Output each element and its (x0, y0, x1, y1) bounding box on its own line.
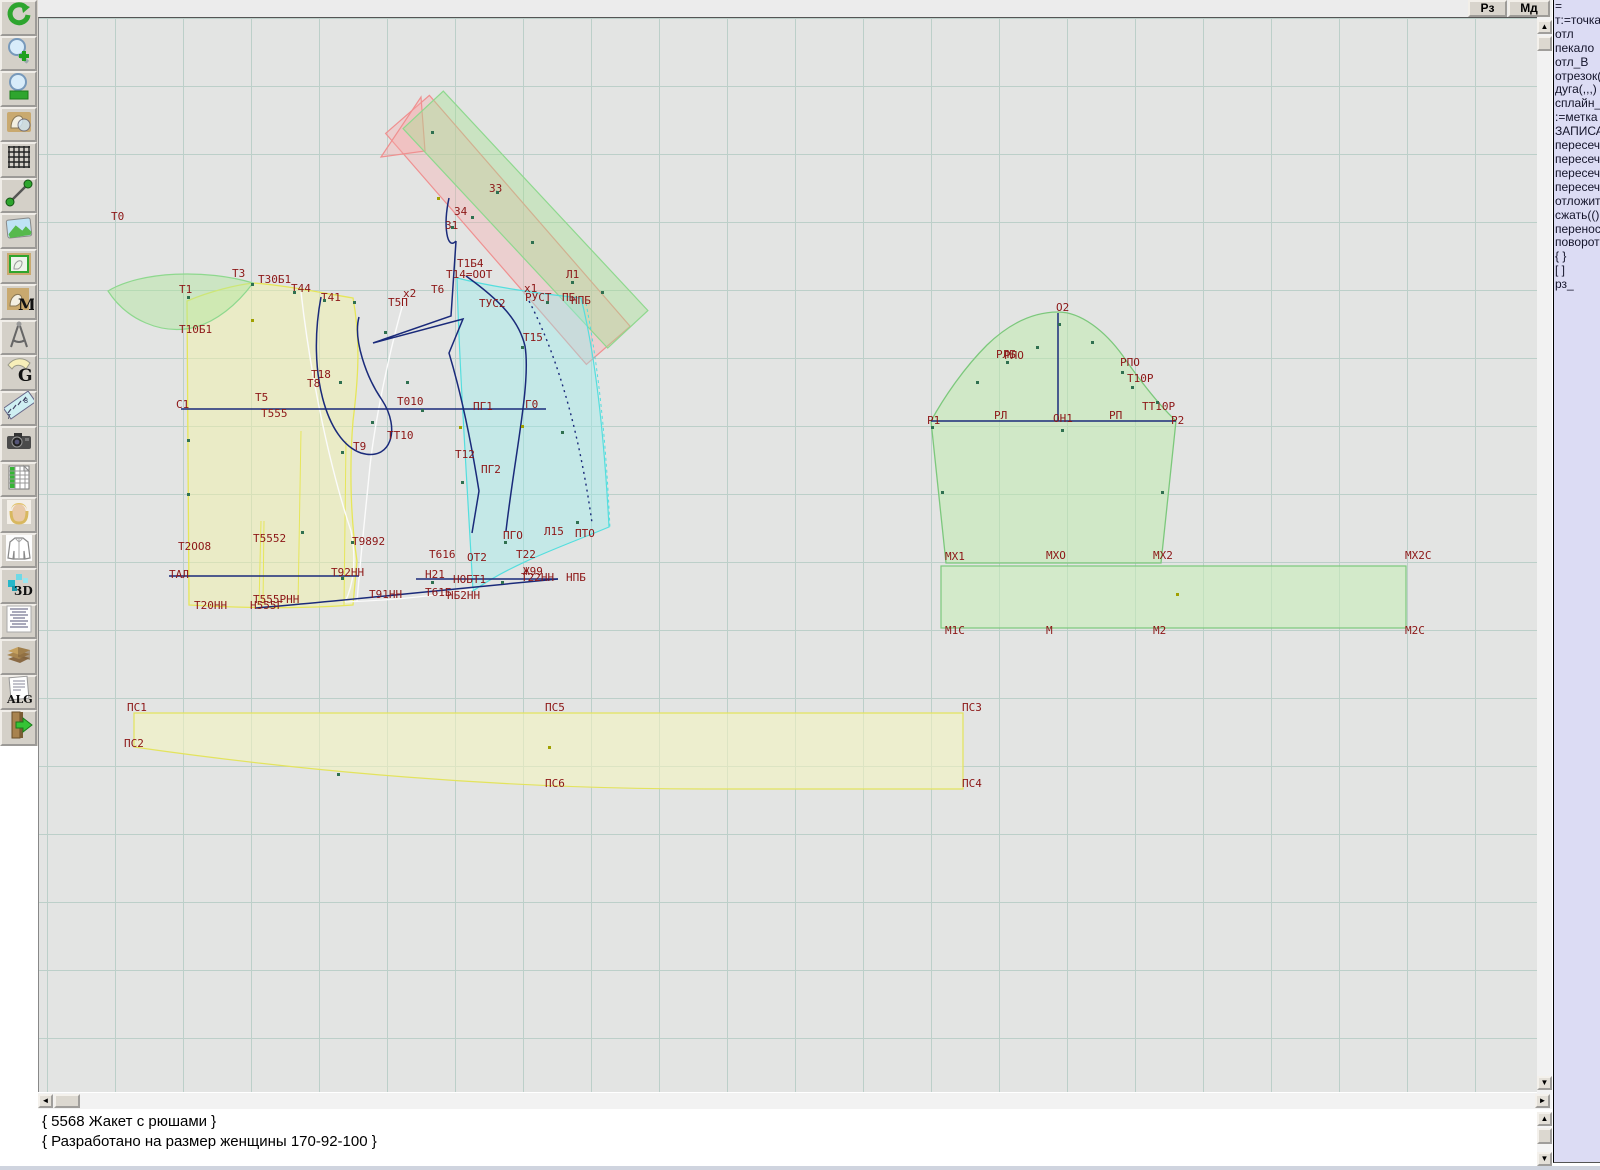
point-label: М2С (1405, 625, 1425, 636)
point-marker (561, 431, 564, 434)
point-label: Т010 (397, 396, 424, 407)
point-marker (931, 426, 934, 429)
point-label: Т555 (261, 408, 288, 419)
bottom-edge (0, 1166, 1600, 1170)
point-marker (421, 409, 424, 412)
rz-mode-button[interactable]: Рз (1468, 0, 1507, 17)
point-marker (341, 451, 344, 454)
command-item[interactable]: :=метка (1554, 111, 1600, 125)
model-description-line2: { Разработано на размер женщины 170-92-1… (42, 1133, 377, 1150)
point-marker (1156, 401, 1159, 404)
point-label: Т22 (516, 549, 536, 560)
command-item[interactable]: поворот (1554, 236, 1600, 250)
command-item[interactable]: отл_В (1554, 56, 1600, 70)
command-item[interactable]: пекало (1554, 42, 1600, 56)
image-icon (4, 213, 34, 248)
point-marker (384, 331, 387, 334)
ruler-button[interactable]: 78 (0, 391, 37, 427)
toolbar: M G 78 3D ALG (0, 0, 38, 746)
top-strip: Рз Мд (38, 0, 1552, 17)
command-item[interactable]: = (1554, 0, 1600, 14)
point-label: Р1 (927, 415, 940, 426)
garment-view-button[interactable] (0, 533, 37, 569)
notch-marker (548, 746, 551, 749)
point-label: Н21 (425, 569, 445, 580)
command-item[interactable]: пересеч (1554, 139, 1600, 153)
front-piece (457, 278, 609, 591)
point-marker (337, 773, 340, 776)
garment-icon (4, 533, 34, 568)
point-label: Т5 (255, 392, 268, 403)
point-label: РП (1109, 410, 1122, 421)
point-label: Т10Р (1127, 373, 1154, 384)
point-marker (451, 226, 454, 229)
point-label: Т5П (388, 297, 408, 308)
command-item[interactable]: т:=точка (1554, 14, 1600, 28)
point-label: РЛ (994, 410, 1007, 421)
point-marker (504, 541, 507, 544)
pattern-marker-button[interactable]: M (0, 284, 37, 320)
point-label: Т8 (307, 378, 320, 389)
point-label: С1 (176, 399, 189, 410)
point-marker (341, 577, 344, 580)
console-scroll-thumb[interactable] (1537, 1128, 1552, 1144)
point-marker (941, 491, 944, 494)
preview-pattern-button[interactable] (0, 107, 37, 143)
model-description-line1: { 5568 Жакет с рюшами } (42, 1113, 216, 1130)
point-label: РЛО (1004, 350, 1024, 361)
point-label: ПГ1 (473, 401, 493, 412)
point-label: Т2ОО8 (178, 541, 211, 552)
point-label: Т616 (429, 549, 456, 560)
grid-icon (4, 142, 34, 177)
point-label: ПС6 (545, 778, 565, 789)
pattern-frame-button[interactable] (0, 249, 37, 285)
point-label: Т92НН (331, 567, 364, 578)
point-label: О2 (1056, 302, 1069, 313)
pattern-frame-icon (4, 249, 34, 284)
point-marker (521, 346, 524, 349)
point-marker (531, 241, 534, 244)
model-photo-icon (4, 497, 34, 532)
point-label: Т0 (111, 211, 124, 222)
command-item[interactable]: рз_ (1554, 278, 1600, 292)
sleeve-piece (931, 312, 1176, 563)
drawing-canvas[interactable]: Т0Т1Т3Т30Б1Т44Т41Т10Б1Т18Т8Т5С1Т555Т010П… (38, 17, 1537, 1092)
size-table-button[interactable] (0, 462, 37, 498)
point-label: М1С (945, 625, 965, 636)
notch-marker (251, 319, 254, 322)
point-marker (1058, 323, 1061, 326)
point-marker (187, 493, 190, 496)
point-label: ТАЛ (169, 569, 189, 580)
specification-button[interactable] (0, 604, 37, 640)
preview-pattern-icon (4, 107, 34, 142)
point-marker (1006, 361, 1009, 364)
point-label: М (1046, 625, 1053, 636)
svg-text:M: M (18, 295, 34, 314)
point-marker (371, 421, 374, 424)
point-label: ПС2 (124, 738, 144, 749)
back-piece (187, 283, 358, 608)
point-marker (1061, 429, 1064, 432)
point-label: МХ2С (1405, 550, 1432, 561)
point-label: Г0 (525, 399, 538, 410)
point-label: Т91НН (369, 589, 402, 600)
command-item[interactable]: отл (1554, 28, 1600, 42)
svg-text:8: 8 (24, 398, 28, 405)
notch-marker (1176, 593, 1179, 596)
refresh-button[interactable] (0, 0, 37, 36)
command-item[interactable]: { } (1554, 250, 1600, 264)
camera-icon (4, 426, 34, 461)
compass-icon (4, 320, 34, 355)
3d-icon: 3D (4, 568, 34, 603)
compass-button[interactable] (0, 320, 37, 356)
exit-button[interactable] (0, 710, 37, 746)
ruler-icon: 78 (4, 391, 34, 426)
scroll-up-button[interactable]: ▲ (1537, 20, 1552, 34)
point-label: ПГ2 (481, 464, 501, 475)
point-label: Т1 (179, 284, 192, 295)
grid-button[interactable] (0, 142, 37, 178)
point-label: ПТО (575, 528, 595, 539)
image-view-button[interactable] (0, 213, 37, 249)
point-label: ПГО (503, 530, 523, 541)
point-marker (496, 191, 499, 194)
algorithm-icon: ALG (4, 675, 34, 710)
point-label: Т10Б1 (179, 324, 212, 335)
archive-icon (4, 639, 34, 674)
point-label: ТТ10 (387, 430, 414, 441)
svg-text:ALG: ALG (6, 693, 33, 705)
point-marker (461, 481, 464, 484)
point-label: Р2 (1171, 415, 1184, 426)
point-label: МХ2 (1153, 550, 1173, 561)
point-label: Т5552 (253, 533, 286, 544)
point-marker (1161, 491, 1164, 494)
refresh-icon (4, 0, 34, 35)
camera-button[interactable] (0, 426, 37, 462)
md-mode-button[interactable]: Мд (1508, 0, 1550, 17)
command-panel: =т:=точкаотлпекалоотл_Вотрезок(дуга(,,,)… (1553, 0, 1600, 1163)
pattern-marker-icon: M (4, 284, 34, 319)
point-label: ТУС2 (479, 298, 506, 309)
console-scrollbar[interactable]: ▲ ▼ (1537, 1112, 1552, 1166)
command-item[interactable]: сплайн_ (1554, 97, 1600, 111)
point-marker (406, 381, 409, 384)
point-marker (431, 131, 434, 134)
point-label: М2 (1153, 625, 1166, 636)
scroll-left-button[interactable]: ◄ (38, 1094, 53, 1108)
command-item[interactable]: отрезок( (1554, 70, 1600, 84)
point-marker (976, 381, 979, 384)
point-label: ПС4 (962, 778, 982, 789)
scroll-down-button[interactable]: ▼ (1537, 1076, 1552, 1090)
command-item[interactable]: [ ] (1554, 264, 1600, 278)
point-marker (323, 299, 326, 302)
point-marker (1091, 341, 1094, 344)
exit-icon (4, 710, 34, 745)
command-item[interactable]: отложит (1554, 195, 1600, 209)
cuff-piece (941, 566, 1406, 628)
horizontal-scroll-thumb[interactable] (54, 1094, 80, 1108)
scroll-right-button[interactable]: ► (1535, 1094, 1550, 1108)
notch-marker (459, 426, 462, 429)
command-item[interactable]: ЗАПИСА (1554, 125, 1600, 139)
archive-button[interactable] (0, 639, 37, 675)
svg-text:7: 7 (7, 414, 11, 421)
point-label: ПС1 (127, 702, 147, 713)
command-item[interactable]: пересеч (1554, 153, 1600, 167)
point-label: Т9 (353, 441, 366, 452)
specification-icon (4, 604, 34, 639)
point-label: Т3 (232, 268, 245, 279)
point-label: Т20НН (194, 600, 227, 611)
point-label: Т6 (431, 284, 444, 295)
point-label: Л15 (544, 526, 564, 537)
model-photo-button[interactable] (0, 497, 37, 533)
point-label: РПО (1120, 357, 1140, 368)
table-icon (4, 462, 34, 497)
point-label: Т22НН (521, 572, 554, 583)
command-item[interactable]: пересеч (1554, 167, 1600, 181)
point-label: Т9892 (352, 536, 385, 547)
point-label: Т14=ООТ (446, 269, 492, 280)
point-marker (301, 531, 304, 534)
point-marker (1121, 371, 1124, 374)
point-marker (576, 521, 579, 524)
point-label: ПС5 (545, 702, 565, 713)
point-marker (187, 439, 190, 442)
point-label: ПС3 (962, 702, 982, 713)
point-label: ОН1 (1053, 413, 1073, 424)
point-label: МХ1 (945, 551, 965, 562)
point-label: НОБТ1 (453, 574, 486, 585)
console-scroll-down-button[interactable]: ▼ (1537, 1152, 1552, 1166)
zoom-out-icon (4, 71, 34, 106)
notch-marker (521, 425, 524, 428)
vertical-scroll-thumb[interactable] (1537, 36, 1552, 51)
description-console[interactable]: { 5568 Жакет с рюшами } { Разработано на… (0, 1109, 1552, 1170)
zoom-in-button[interactable] (0, 36, 37, 72)
zoom-out-button[interactable] (0, 71, 37, 107)
console-scroll-up-button[interactable]: ▲ (1537, 1112, 1552, 1126)
point-label: Н555Г (250, 600, 283, 611)
point-label: Т12 (455, 449, 475, 460)
view-3d-button[interactable]: 3D (0, 568, 37, 604)
point-marker (187, 296, 190, 299)
point-marker (431, 581, 434, 584)
point-label: НБ2НН (447, 590, 480, 601)
canvas-vertical-scrollbar[interactable]: ▲ ▼ (1537, 17, 1552, 1093)
point-label: Л1 (566, 269, 579, 280)
command-item[interactable]: пересеч (1554, 181, 1600, 195)
segment-icon (4, 178, 34, 213)
pattern-drawing (39, 18, 1537, 1092)
command-item[interactable]: перенос (1554, 223, 1600, 237)
point-marker (601, 291, 604, 294)
point-marker (471, 216, 474, 219)
grading-button[interactable]: G (0, 355, 37, 391)
point-label: НПБ (566, 572, 586, 583)
point-label: Т30Б1 (258, 274, 291, 285)
point-marker (293, 291, 296, 294)
command-item[interactable]: сжать(() (1554, 209, 1600, 223)
segment-button[interactable] (0, 178, 37, 214)
point-label: НПБ (571, 295, 591, 306)
point-marker (501, 581, 504, 584)
command-item[interactable]: дуга(,,,) (1554, 83, 1600, 97)
svg-text:3D: 3D (14, 584, 33, 598)
canvas-horizontal-scrollbar[interactable]: ◄ ► (38, 1093, 1552, 1109)
point-marker (251, 283, 254, 286)
zoom-in-icon (4, 36, 34, 71)
point-marker (1036, 346, 1039, 349)
point-marker (571, 281, 574, 284)
svg-text:G: G (18, 366, 33, 385)
point-marker (546, 301, 549, 304)
point-marker (353, 301, 356, 304)
algorithm-button[interactable]: ALG (0, 675, 37, 711)
notch-marker (437, 197, 440, 200)
point-marker (351, 541, 354, 544)
point-marker (339, 381, 342, 384)
point-marker (1131, 386, 1134, 389)
point-label: ОТ2 (467, 552, 487, 563)
point-label: МХО (1046, 550, 1066, 561)
point-label: Т15 (523, 332, 543, 343)
grading-icon: G (4, 355, 34, 390)
point-label: З4 (454, 206, 467, 217)
